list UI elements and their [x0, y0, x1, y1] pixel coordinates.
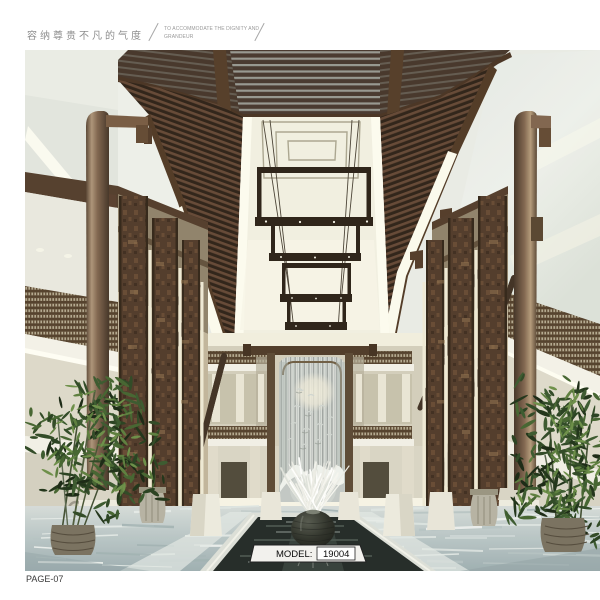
svg-text:19004: 19004 [323, 549, 349, 560]
svg-text:MODEL:: MODEL: [276, 549, 312, 560]
